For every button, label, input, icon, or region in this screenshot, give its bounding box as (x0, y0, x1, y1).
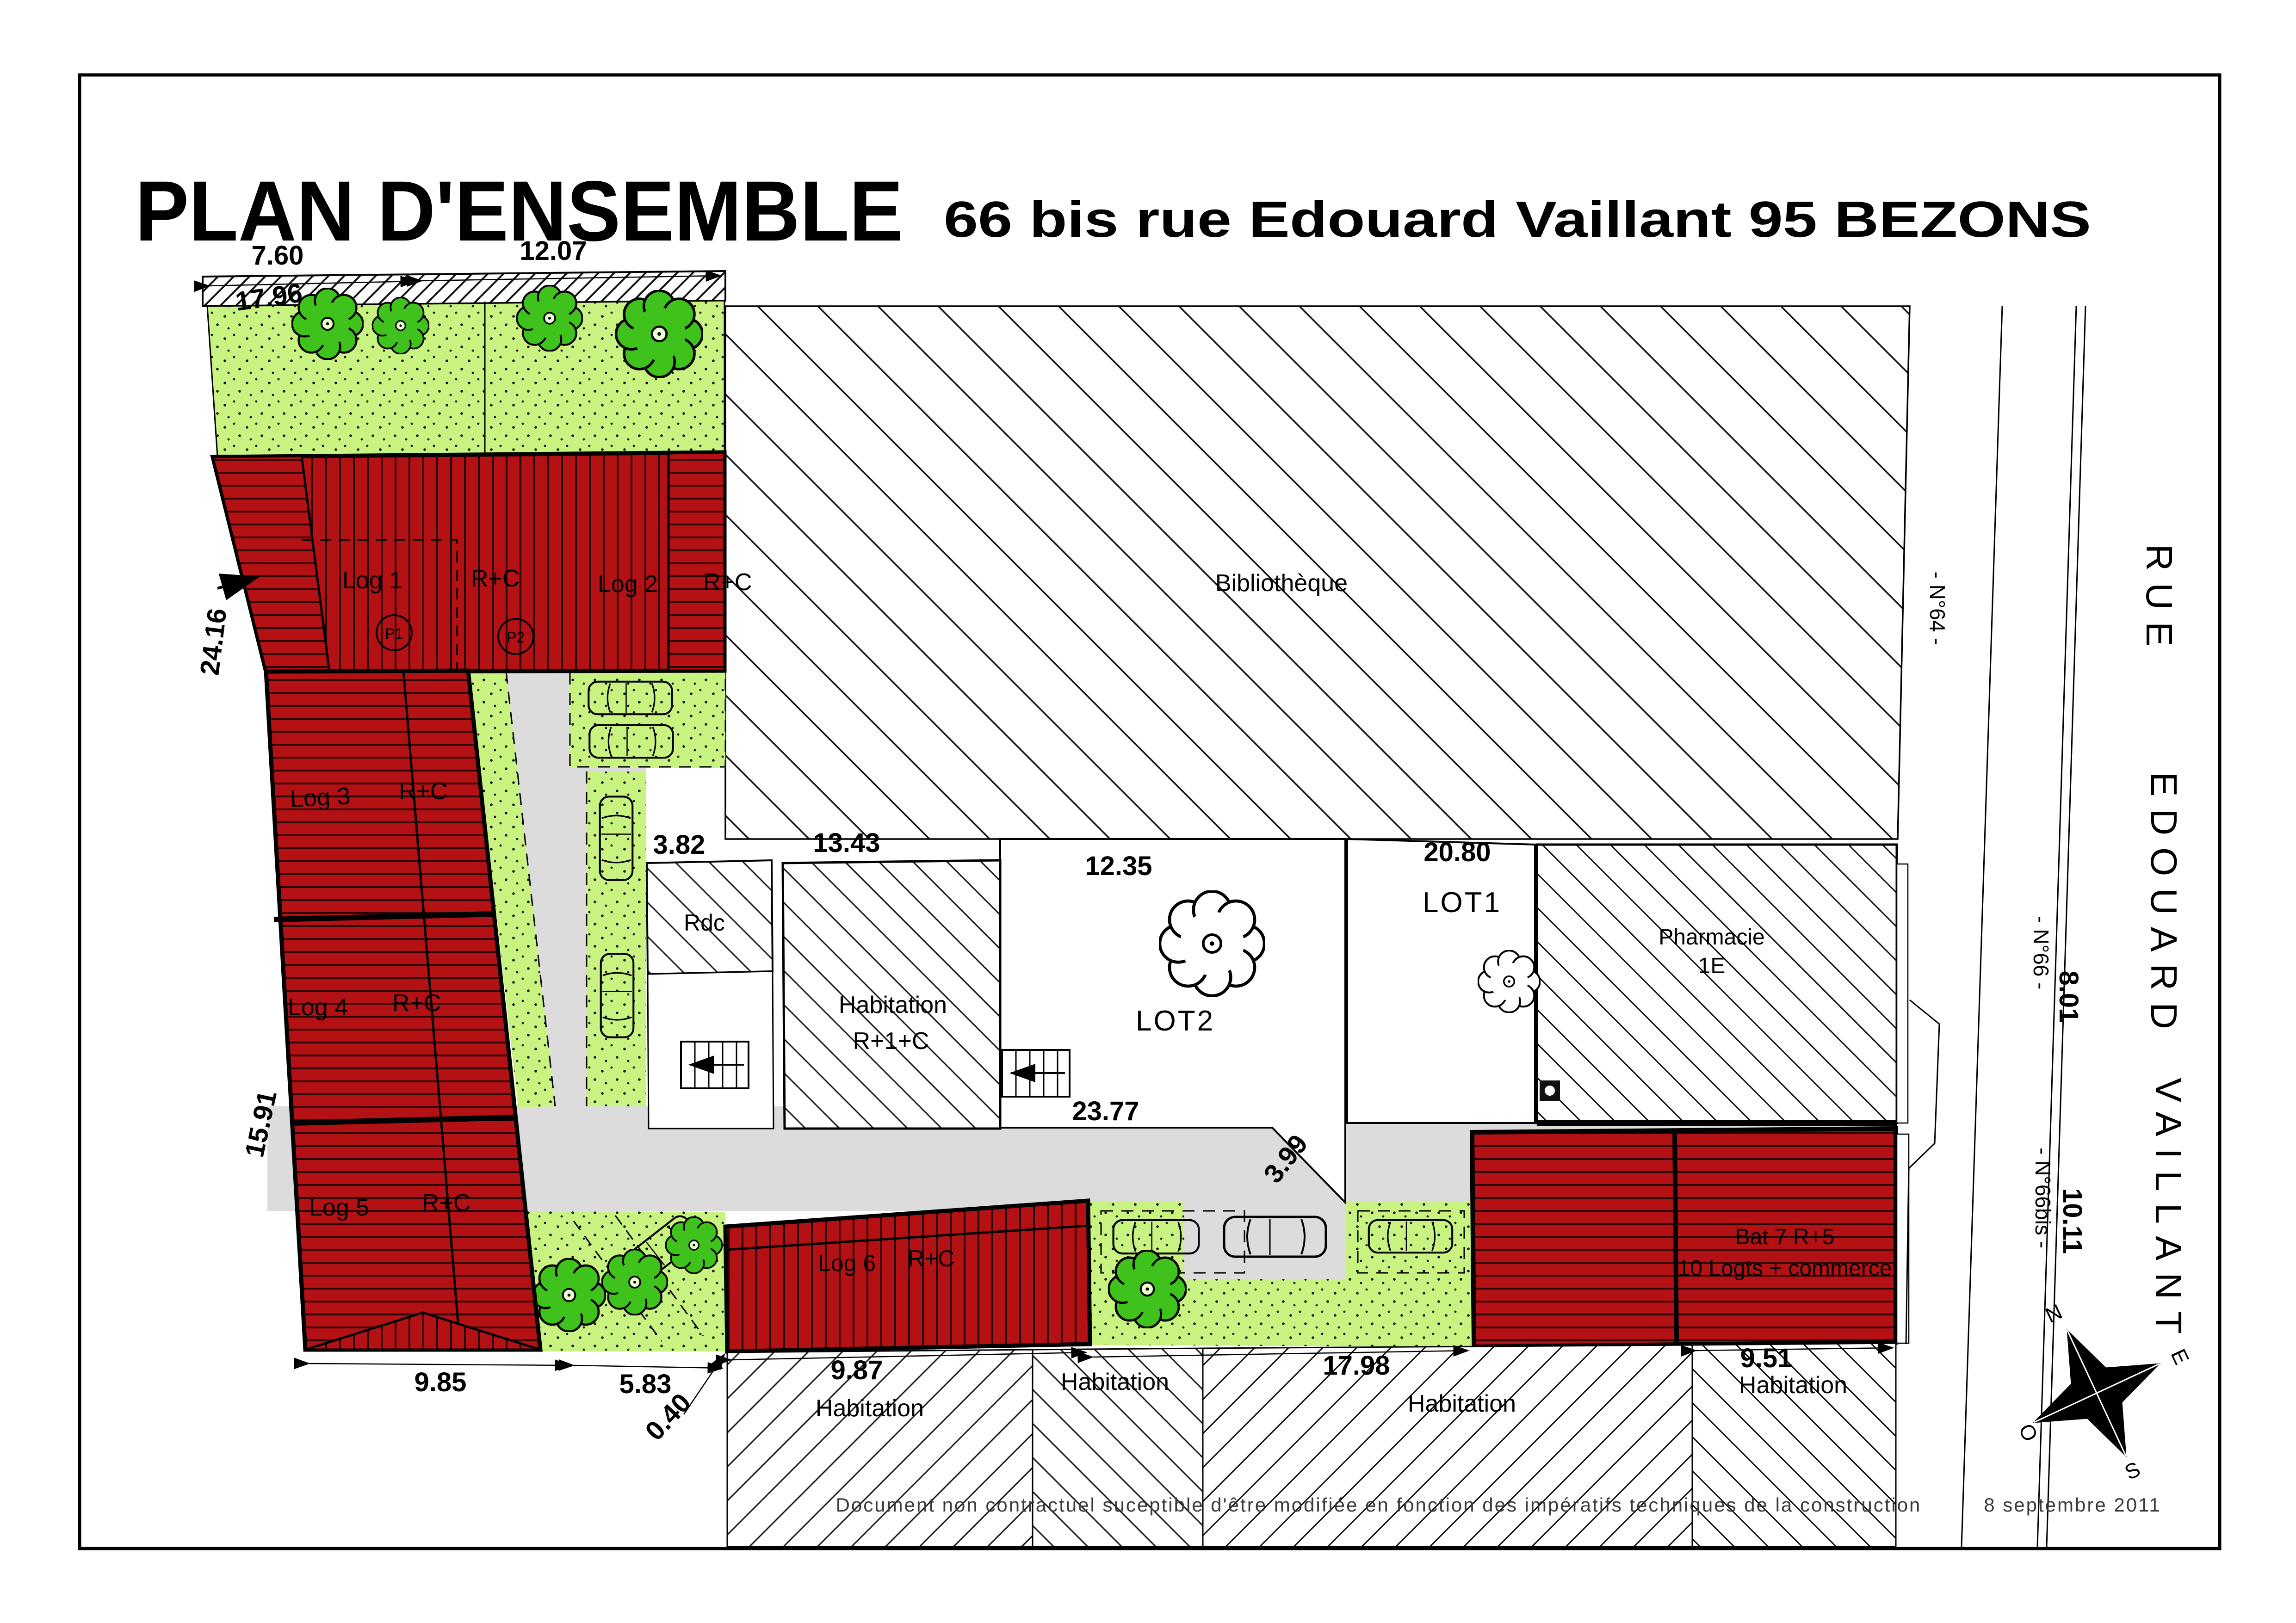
neighbor-label-1: Habitation (816, 1395, 924, 1422)
p1-label: P1 (385, 625, 403, 642)
neighbor-label-4: Habitation (1739, 1372, 1847, 1399)
habitation-r1c-label-2: R+1+C (853, 1028, 929, 1055)
dim-9-85: 9.85 (415, 1367, 467, 1397)
dim-7-60: 7.60 (252, 241, 304, 271)
neighbor-label-2: Habitation (1061, 1369, 1169, 1395)
building-log6 (725, 1201, 1090, 1351)
street-number-n64: - N°64 - (1925, 572, 1949, 645)
footer-date: 8 septembre 2011 (1984, 1494, 2161, 1516)
street-name-vaillant: VAILLANT (2148, 1078, 2189, 1346)
page-subtitle: 66 bis rue Edouard Vaillant 95 BEZONS (944, 191, 2091, 248)
green-band-south (526, 1211, 725, 1351)
street-name-edouard: EDOUARD (2143, 772, 2185, 1041)
street-number-n66: - N°66 - (2029, 916, 2053, 990)
street-name-rue: RUE (2139, 544, 2180, 659)
bat7-divider (1675, 1130, 1677, 1345)
log3-label: Log 3 (290, 783, 351, 813)
habitation-r1c-label-1: Habitation (839, 992, 947, 1018)
tree-icon (616, 291, 703, 377)
log1-floors: R+C (471, 565, 520, 592)
tree-outline-icon (1160, 891, 1264, 996)
stair-icon (1002, 1050, 1070, 1097)
log5-floors: R+C (422, 1190, 470, 1216)
bat7-label: Bat 7 R+5 (1735, 1225, 1835, 1249)
facade-marker-n66 (1897, 864, 1908, 1123)
building-log2-east-wing (668, 452, 724, 671)
neighbor-parcel-3 (1203, 1345, 1692, 1547)
dim-20-80: 20.80 (1423, 837, 1491, 867)
parking-strip-west (587, 771, 646, 1106)
pharmacie-label: Pharmacie (1659, 925, 1764, 950)
log6-floors: R+C (908, 1246, 954, 1271)
bibliotheque-label: Bibliothèque (1215, 570, 1348, 597)
log1-label: Log 1 (342, 567, 402, 594)
dim-17-98: 17.98 (1323, 1351, 1390, 1381)
lot2-label: LOT2 (1136, 1005, 1215, 1037)
tree-outline-icon (1478, 950, 1540, 1012)
page-title: PLAN D'ENSEMBLE (135, 164, 903, 259)
log4-floors: R+C (392, 990, 441, 1017)
log2-label: Log 2 (598, 571, 658, 598)
p2-label: P2 (507, 629, 525, 646)
rdc-label: Rdc (684, 910, 725, 936)
parking-strip-east (1090, 1202, 1471, 1347)
plan-sheet: PLAN D'ENSEMBLE 66 bis rue Edouard Vaill… (0, 0, 2296, 1623)
log2-floors: R+C (703, 569, 752, 596)
dim-23-77: 23.77 (1072, 1096, 1139, 1126)
dim-13-43: 13.43 (813, 828, 880, 858)
log3-floors: R+C (399, 778, 447, 805)
dim-9-87: 9.87 (831, 1355, 883, 1385)
lot1-label: LOT1 (1423, 887, 1502, 919)
pharmacie-building (1537, 845, 1897, 1123)
dim-12-07: 12.07 (520, 236, 587, 266)
dim-9-51: 9.51 (1740, 1343, 1793, 1373)
tree-icon (517, 285, 582, 351)
log5-label: Log 5 (309, 1194, 369, 1221)
footer-disclaimer: Document non contractuel suceptible d'êt… (836, 1494, 1922, 1516)
dim-3-82: 3.82 (653, 830, 706, 860)
log6-label: Log 6 (818, 1250, 876, 1276)
pharmacie-door-knob (1545, 1086, 1555, 1096)
plan-svg: PLAN D'ENSEMBLE 66 bis rue Edouard Vaill… (0, 0, 2296, 1623)
bat7-desc: 10 Logts + commerce (1678, 1256, 1892, 1281)
log4-label: Log 4 (288, 994, 348, 1021)
street-number-n66bis: - N°66bis - (2031, 1148, 2055, 1248)
dim-12-35: 12.35 (1085, 851, 1152, 881)
stair-icon (681, 1042, 749, 1088)
pharmacie-floor-label: 1E (1698, 954, 1726, 978)
dim-5-83: 5.83 (619, 1369, 672, 1399)
neighbor-label-3: Habitation (1408, 1390, 1516, 1417)
dim-8-01: 8.01 (2054, 971, 2084, 1023)
tree-icon (372, 297, 429, 354)
dim-10-11: 10.11 (2057, 1188, 2087, 1254)
parking-band-north (570, 672, 725, 767)
